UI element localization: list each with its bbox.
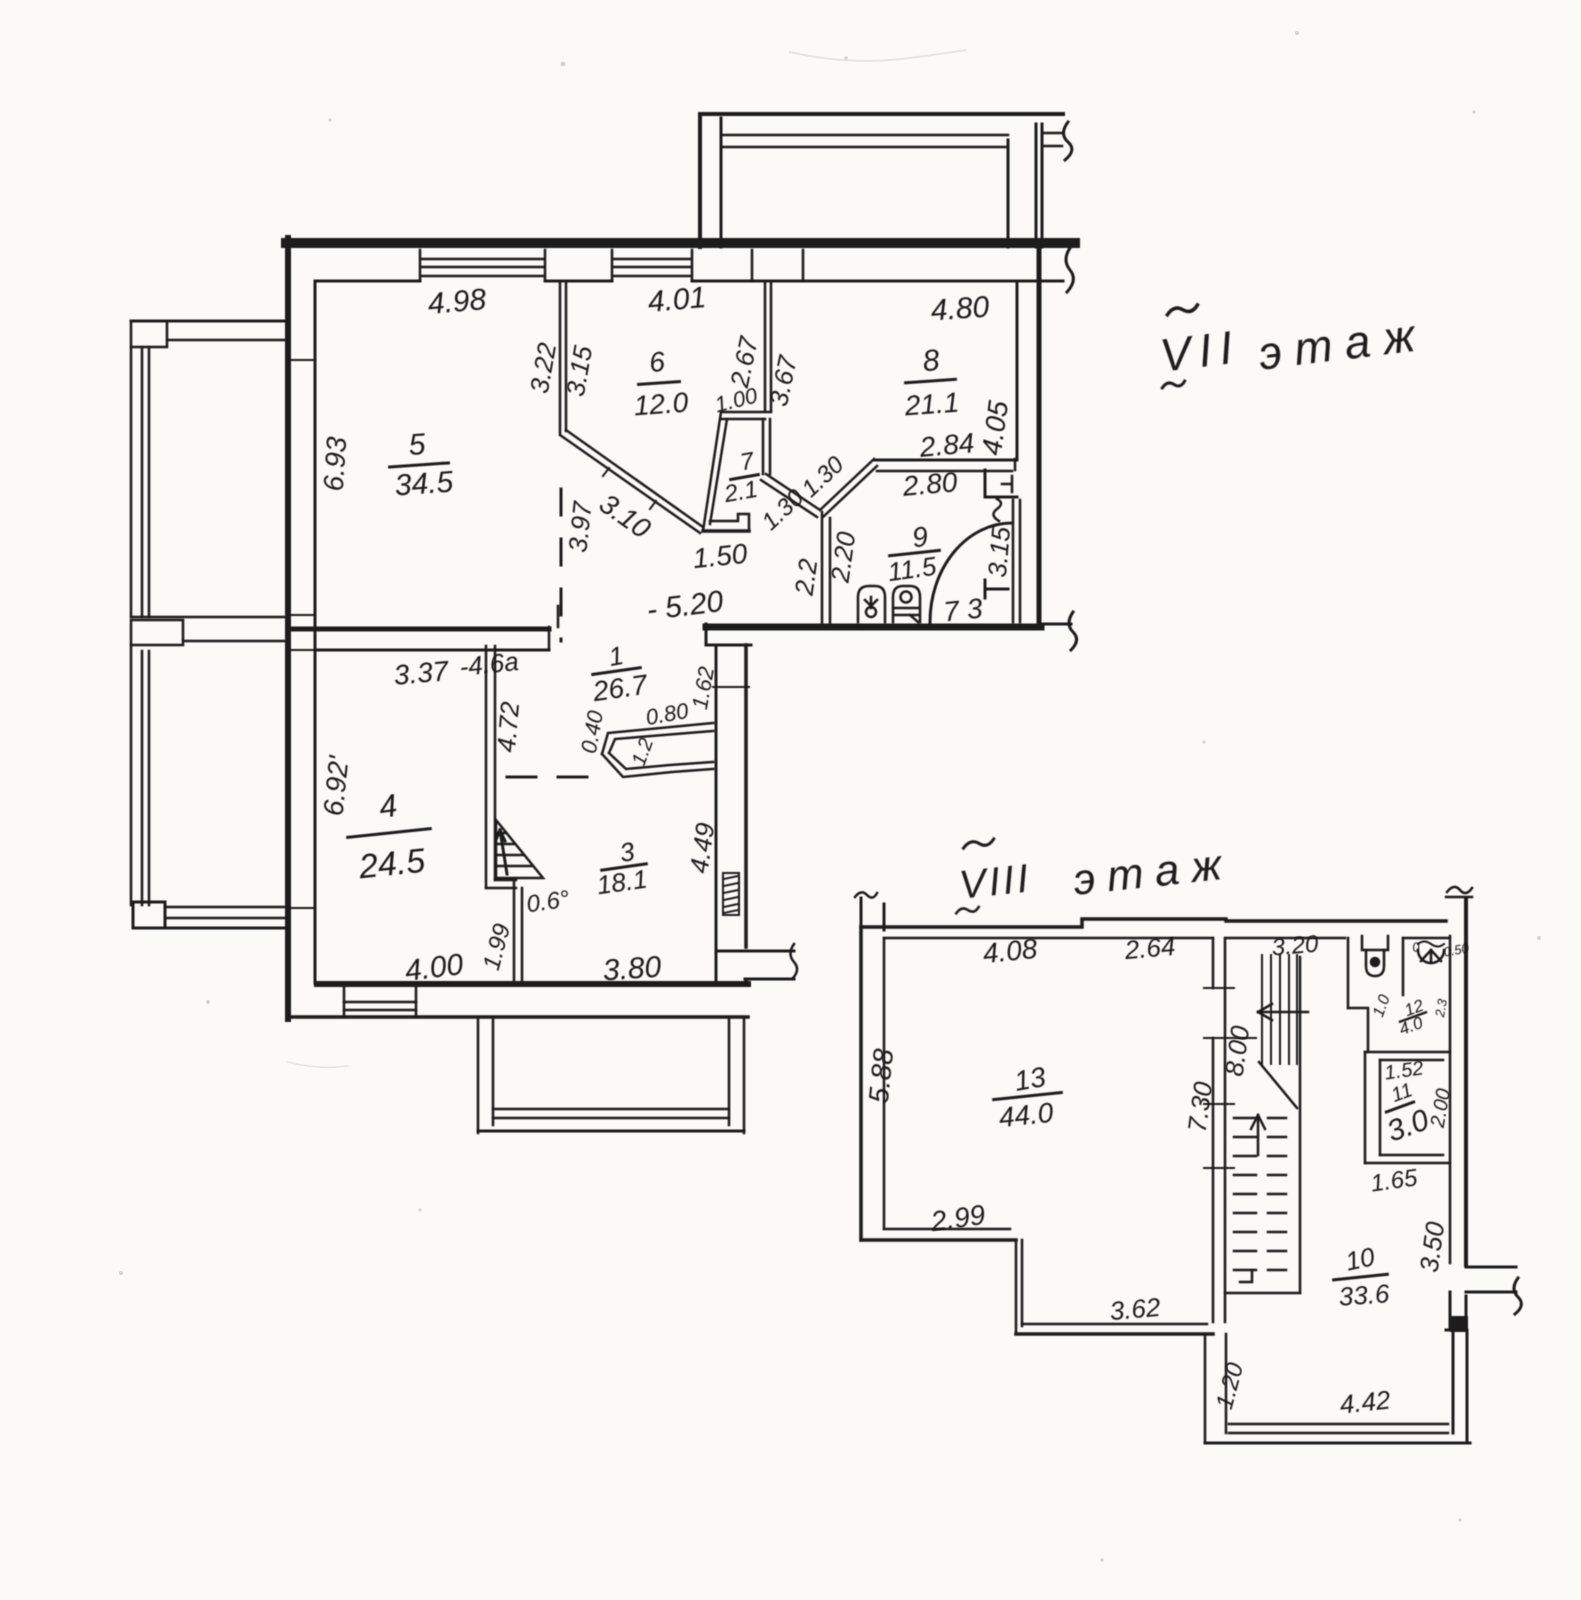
svg-text:2.64: 2.64	[1122, 931, 1176, 965]
svg-text:4.01: 4.01	[646, 281, 707, 319]
svg-text:3: 3	[617, 836, 637, 868]
svg-text:4.05: 4.05	[976, 398, 1014, 457]
svg-text:24.5: 24.5	[356, 842, 427, 887]
svg-text:2.3: 2.3	[1432, 997, 1450, 1019]
svg-text:1.65: 1.65	[1369, 1164, 1420, 1197]
svg-text:4.08: 4.08	[981, 933, 1039, 970]
svg-text:6.93: 6.93	[318, 435, 353, 492]
svg-text:6.92': 6.92'	[317, 753, 354, 817]
svg-text:6: 6	[648, 346, 667, 379]
svg-text:3.62: 3.62	[1108, 1292, 1162, 1326]
svg-text:4.72: 4.72	[491, 700, 525, 754]
svg-text:44.0: 44.0	[997, 1097, 1055, 1134]
svg-text:8: 8	[921, 344, 941, 379]
svg-text:3.80: 3.80	[602, 950, 663, 987]
svg-text:10: 10	[1343, 1241, 1378, 1276]
svg-text:13: 13	[1012, 1061, 1048, 1097]
svg-text:7 3: 7 3	[942, 593, 984, 628]
svg-text:1.30: 1.30	[757, 484, 810, 536]
svg-text:этаж: этаж	[1256, 307, 1431, 379]
svg-text:2.1: 2.1	[721, 476, 760, 509]
svg-text:3.15: 3.15	[982, 525, 1016, 579]
svg-text:3.20: 3.20	[1271, 930, 1321, 961]
svg-text:3.37: 3.37	[393, 655, 451, 691]
svg-text:2.80: 2.80	[901, 466, 959, 502]
svg-text:1.50: 1.50	[691, 538, 749, 575]
svg-text:3.97: 3.97	[562, 499, 597, 554]
svg-text:4: 4	[377, 787, 400, 825]
svg-text:2.99: 2.99	[928, 1199, 987, 1237]
svg-text:1: 1	[606, 640, 625, 672]
svg-text:2.20: 2.20	[824, 529, 861, 585]
svg-text:33.6: 33.6	[1338, 1278, 1391, 1311]
svg-text:2.2: 2.2	[788, 556, 823, 597]
svg-text:3.50: 3.50	[1414, 1219, 1451, 1274]
svg-text:этаж: этаж	[1071, 839, 1236, 905]
svg-text:0: 0	[1411, 939, 1421, 955]
svg-text:1.99: 1.99	[478, 921, 516, 973]
svg-text:34.5: 34.5	[394, 465, 455, 502]
svg-text:3.67: 3.67	[763, 352, 803, 409]
svg-text:3.22: 3.22	[524, 340, 562, 396]
svg-text:1.0: 1.0	[1370, 993, 1394, 1020]
svg-text:4.98: 4.98	[426, 283, 487, 321]
svg-text:21.1: 21.1	[903, 387, 961, 422]
svg-text:0.6°: 0.6°	[525, 886, 572, 919]
svg-text:12.0: 12.0	[633, 387, 690, 422]
svg-text:VIII: VIII	[957, 856, 1033, 907]
svg-text:2.67: 2.67	[724, 333, 764, 391]
svg-text:1.30: 1.30	[797, 451, 850, 503]
svg-text:7: 7	[738, 447, 757, 476]
svg-text:VII: VII	[1157, 320, 1243, 381]
svg-text:4.42: 4.42	[1338, 1384, 1392, 1419]
svg-text:-4.6a: -4.6a	[458, 646, 520, 682]
svg-text:9: 9	[910, 521, 930, 554]
svg-text:- 5.20: - 5.20	[645, 585, 725, 627]
svg-text:2.84: 2.84	[918, 427, 976, 463]
svg-text:5.88: 5.88	[863, 1047, 900, 1105]
svg-text:8.00: 8.00	[1219, 1023, 1256, 1078]
svg-text:5: 5	[408, 428, 427, 462]
svg-text:1.62: 1.62	[687, 665, 719, 712]
svg-text:4.80: 4.80	[930, 290, 991, 327]
svg-text:1.20: 1.20	[1211, 1359, 1249, 1412]
svg-text:1.2: 1.2	[628, 735, 658, 769]
